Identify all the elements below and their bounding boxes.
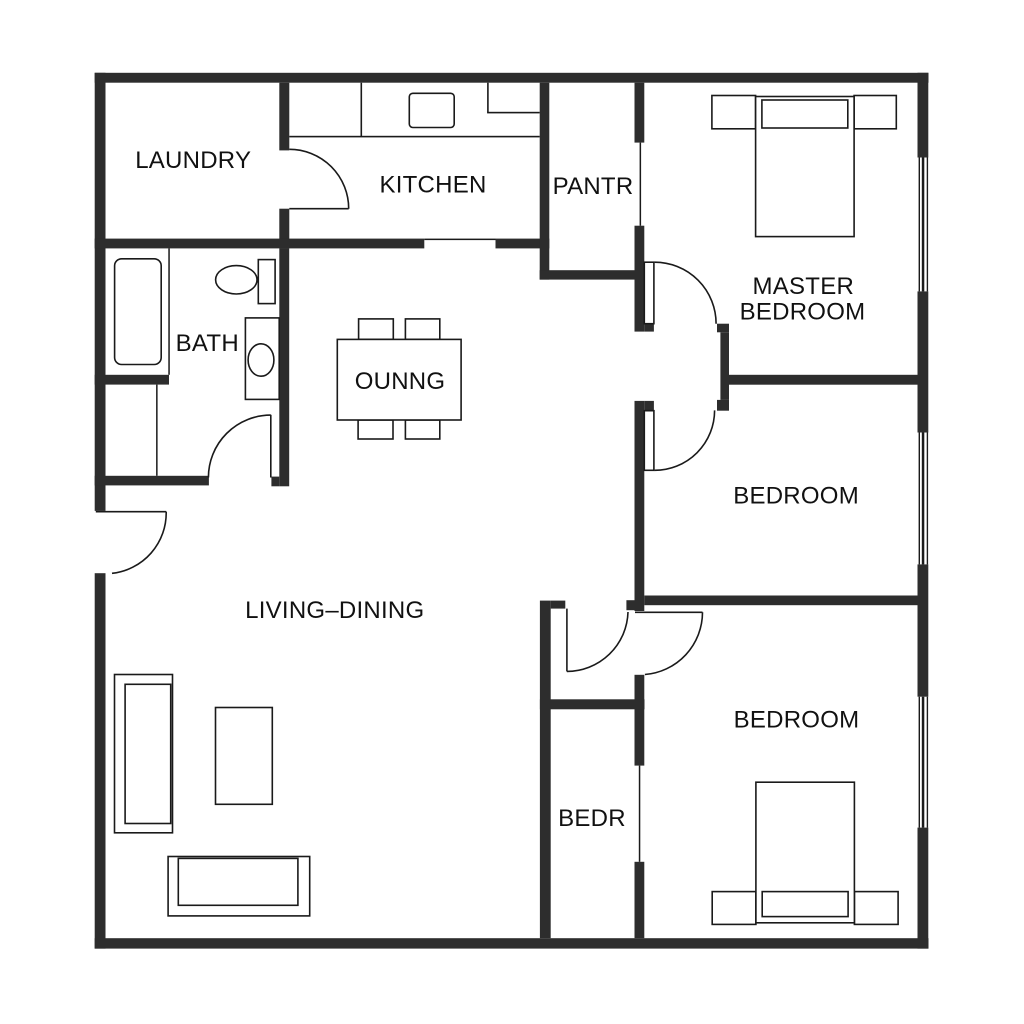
- svg-text:OUNNG: OUNNG: [355, 368, 446, 395]
- svg-text:PANTR: PANTR: [553, 173, 634, 200]
- svg-text:BEDR: BEDR: [558, 805, 626, 832]
- svg-text:MASTER: MASTER: [753, 273, 855, 300]
- svg-text:BEDROOM: BEDROOM: [734, 707, 860, 734]
- svg-text:LIVING–DINING: LIVING–DINING: [245, 597, 424, 624]
- svg-text:BATH: BATH: [176, 330, 239, 357]
- svg-text:BEDROOM: BEDROOM: [740, 299, 866, 326]
- svg-text:BEDROOM: BEDROOM: [733, 483, 859, 510]
- svg-text:KITCHEN: KITCHEN: [379, 172, 486, 199]
- svg-text:LAUNDRY: LAUNDRY: [135, 147, 251, 174]
